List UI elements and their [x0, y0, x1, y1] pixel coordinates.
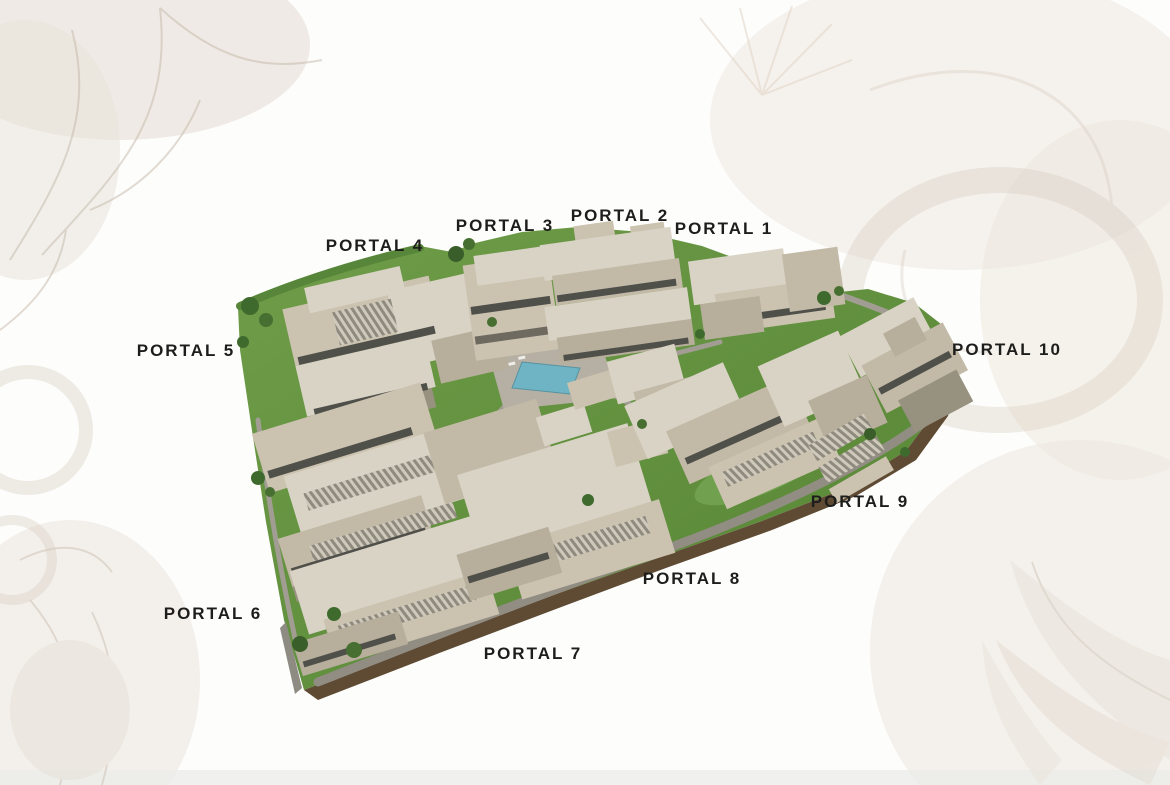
site-overview-image: PORTAL 1 PORTAL 2 PORTAL 3 PORTAL 4 PORT… [0, 0, 1170, 785]
site-3d-render [0, 0, 1170, 785]
